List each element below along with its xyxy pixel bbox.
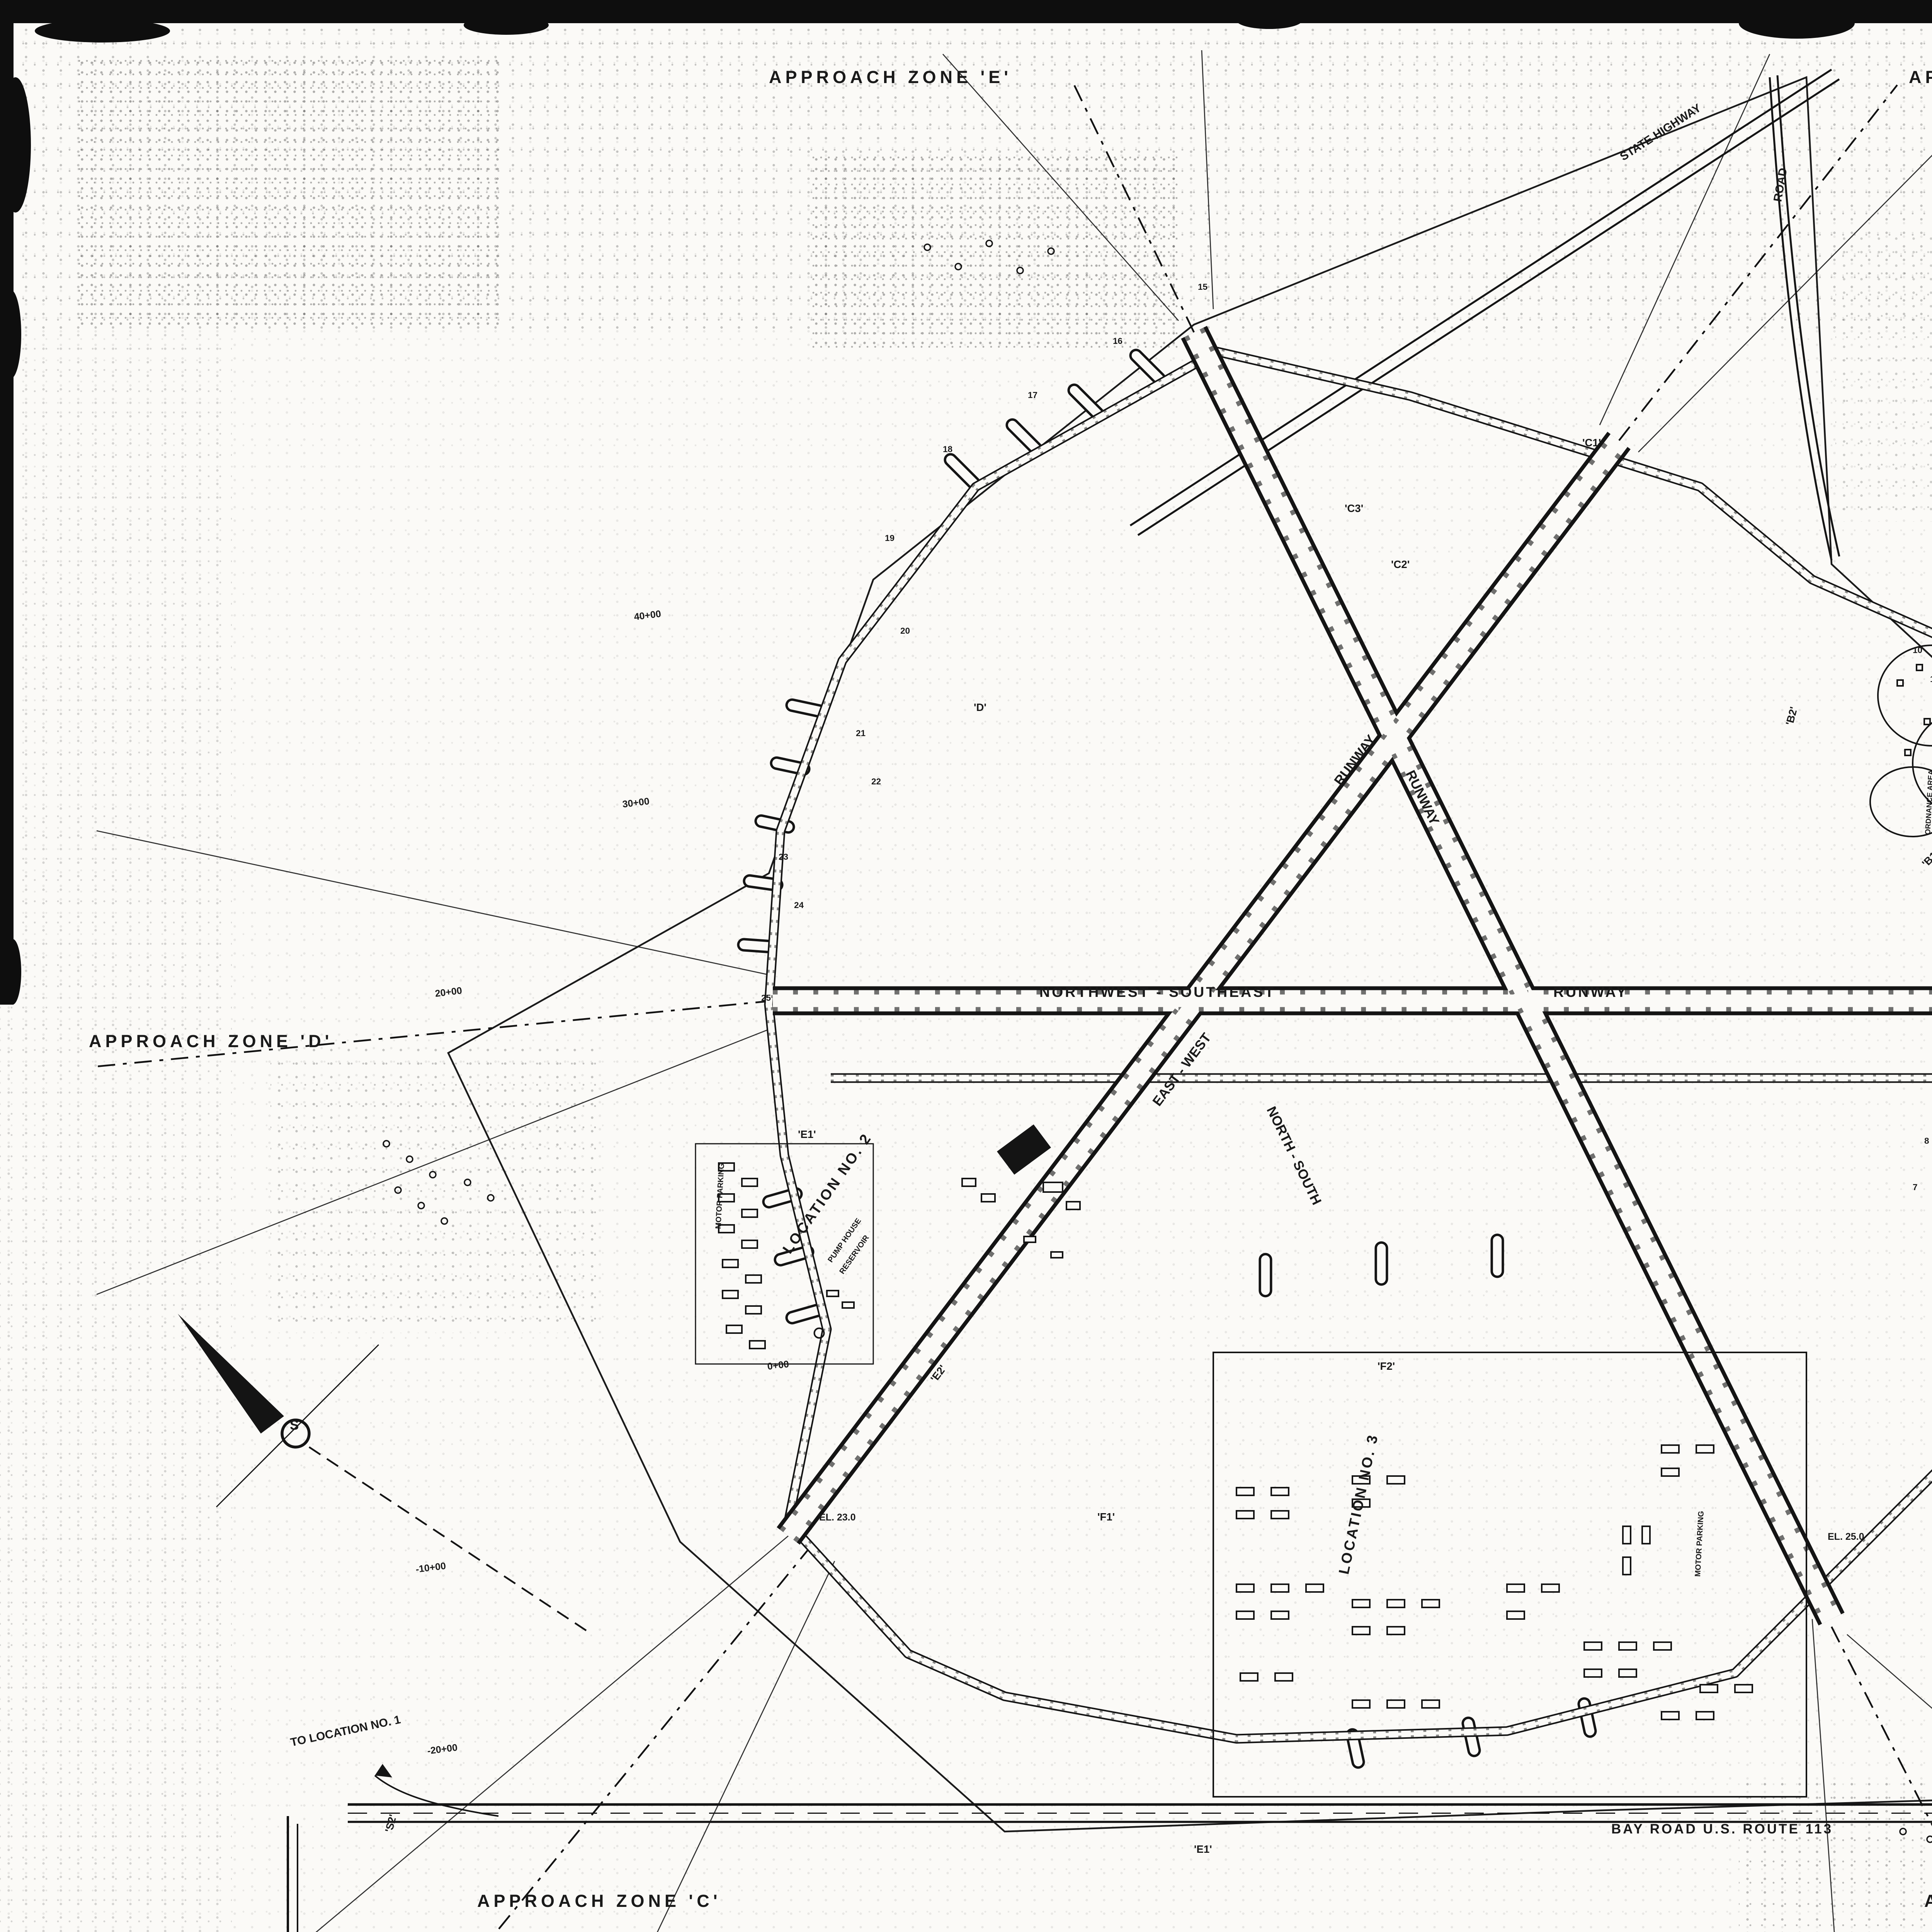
label-taxiway-id: 'E1'	[1194, 1847, 1212, 1858]
map-artwork	[0, 0, 1932, 1932]
compass-north-arrow	[178, 1314, 589, 1633]
label-taxiway-id: 'F1'	[1097, 1515, 1115, 1526]
label-hardstand: 20	[900, 628, 910, 637]
label-approach-zone-f: APPROACH ZONE 'F'	[1909, 70, 1932, 87]
label-approach-zone-d: APPROACH ZONE 'D'	[89, 1034, 333, 1051]
label-hardstand: 7	[1913, 1184, 1918, 1193]
label-approach-zone-c: APPROACH ZONE 'C'	[477, 1893, 721, 1911]
label-elevation: EL. 25.0	[1828, 1534, 1864, 1544]
taxiways	[744, 352, 1932, 1762]
ordnance-area	[1870, 645, 1932, 837]
label-runway-nw-se-2: RUNWAY	[1553, 985, 1628, 1000]
label-hardstand: 25	[761, 995, 771, 1004]
label-taxiway-id: 'C2'	[1391, 562, 1410, 573]
compass-south-letter: S	[290, 1420, 299, 1434]
label-bay-road: BAY ROAD U.S. ROUTE 113	[1611, 1824, 1833, 1837]
label-taxiway-id: 'C3'	[1345, 506, 1363, 517]
label-taxiway-id: 'C1'	[1582, 440, 1601, 451]
label-hardstand: 16	[1113, 338, 1122, 347]
label-hardstand: 15	[1198, 284, 1207, 293]
label-runway-nw-se: NORTHWEST - SOUTHEAST	[1039, 985, 1276, 1000]
label-elevation: EL. 23.0	[819, 1515, 856, 1524]
label-hardstand: 17	[1028, 392, 1037, 401]
label-hardstand: 24	[794, 902, 804, 911]
label-approach-zone-b: APPROACH ZONE 'B'	[1924, 1893, 1932, 1911]
label-approach-zone-e: APPROACH ZONE 'E'	[769, 70, 1012, 87]
label-hardstand: 23	[779, 854, 788, 863]
label-hardstand: 10	[1913, 647, 1922, 656]
label-taxiway-id: 'E1'	[798, 1132, 816, 1143]
label-taxiway-id: 'D'	[974, 705, 986, 716]
label-hardstand: 11	[1930, 676, 1932, 685]
label-ordnance-area: ORDNANCE AREA	[1926, 770, 1932, 835]
label-hardstand: 19	[885, 535, 895, 544]
label-taxiway-id: 'F2'	[1378, 1364, 1395, 1375]
label-hardstand: 8	[1924, 1138, 1929, 1147]
dover-airdrome-obstruction-plan: APPROACH ZONE 'E'APPROACH ZONE 'F'APPROA…	[0, 0, 1932, 1932]
scanned-drawing-sheet: APPROACH ZONE 'E'APPROACH ZONE 'F'APPROA…	[0, 0, 1932, 1932]
label-hardstand: 22	[871, 779, 881, 787]
label-hardstand: 21	[856, 730, 866, 739]
label-hardstand: 18	[943, 446, 952, 455]
scan-edge-top	[0, 0, 1932, 23]
